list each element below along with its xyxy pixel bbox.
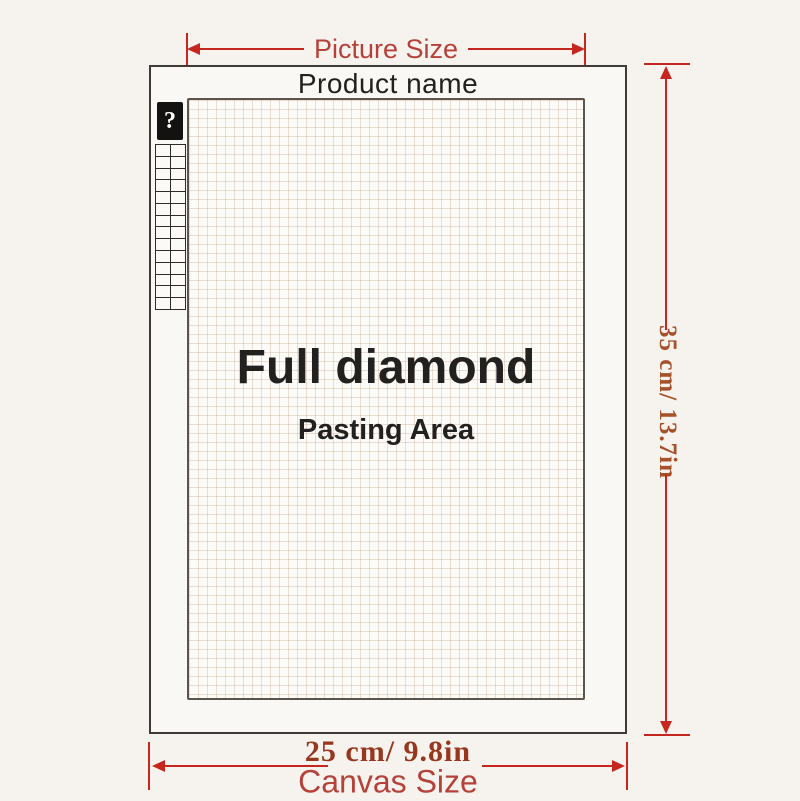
question-mark-icon: ? xyxy=(164,108,176,135)
legend-cell xyxy=(156,227,170,238)
legend-cell xyxy=(156,239,170,250)
legend-cell xyxy=(171,180,185,191)
dimension-line-segment xyxy=(200,48,304,50)
dimension-line-segment xyxy=(665,78,667,330)
legend-cell xyxy=(156,216,170,227)
legend-cell xyxy=(171,275,185,286)
canvas-height-tick-top xyxy=(644,63,690,65)
legend-cell xyxy=(171,286,185,297)
arrowhead-left-icon xyxy=(152,760,165,772)
legend-cell xyxy=(171,263,185,274)
legend-cell xyxy=(156,180,170,191)
legend-cell xyxy=(156,298,170,309)
dimension-line-segment xyxy=(468,48,572,50)
arrowhead-right-icon xyxy=(572,43,585,55)
legend-cell xyxy=(171,169,185,180)
arrowhead-right-icon xyxy=(612,760,625,772)
legend-cell xyxy=(156,263,170,274)
legend-cell xyxy=(171,251,185,262)
pasting-area: Full diamond Pasting Area xyxy=(187,98,585,700)
canvas-size-label: Canvas Size xyxy=(298,764,478,801)
dimension-line-segment xyxy=(665,474,667,722)
legend-cell xyxy=(156,192,170,203)
legend-cell xyxy=(171,227,185,238)
arrowhead-down-icon xyxy=(660,721,672,734)
symbol-legend-table xyxy=(155,144,186,310)
canvas-height-value: 35 cm/ 13.7in xyxy=(653,325,681,479)
legend-cell xyxy=(156,286,170,297)
legend-cell xyxy=(171,239,185,250)
symbol-legend-header: ? xyxy=(157,102,183,140)
canvas-width-tick-right xyxy=(626,742,628,790)
product-name-label: Product name xyxy=(151,68,625,100)
arrowhead-left-icon xyxy=(187,43,200,55)
canvas-height-tick-bottom xyxy=(644,734,690,736)
legend-cell xyxy=(171,192,185,203)
legend-cell xyxy=(171,216,185,227)
size-guide-diagram: Picture Size Product name ? Full diamond… xyxy=(0,0,800,800)
legend-cell xyxy=(156,145,170,156)
picture-size-label: Picture Size xyxy=(314,36,458,62)
legend-cell xyxy=(171,157,185,168)
legend-cell xyxy=(171,298,185,309)
legend-cell xyxy=(156,157,170,168)
pasting-area-title: Full diamond xyxy=(189,340,583,395)
legend-cell xyxy=(156,169,170,180)
picture-size-dimension: Picture Size xyxy=(187,36,585,62)
legend-cell xyxy=(156,204,170,215)
legend-cell xyxy=(171,145,185,156)
legend-cell xyxy=(156,251,170,262)
canvas-width-tick-left xyxy=(148,742,150,790)
legend-cell xyxy=(156,275,170,286)
legend-cell xyxy=(171,204,185,215)
pasting-area-subtitle: Pasting Area xyxy=(189,414,583,447)
canvas-outline: Product name ? Full diamond Pasting Area xyxy=(149,65,627,734)
dimension-line-segment xyxy=(482,765,612,767)
